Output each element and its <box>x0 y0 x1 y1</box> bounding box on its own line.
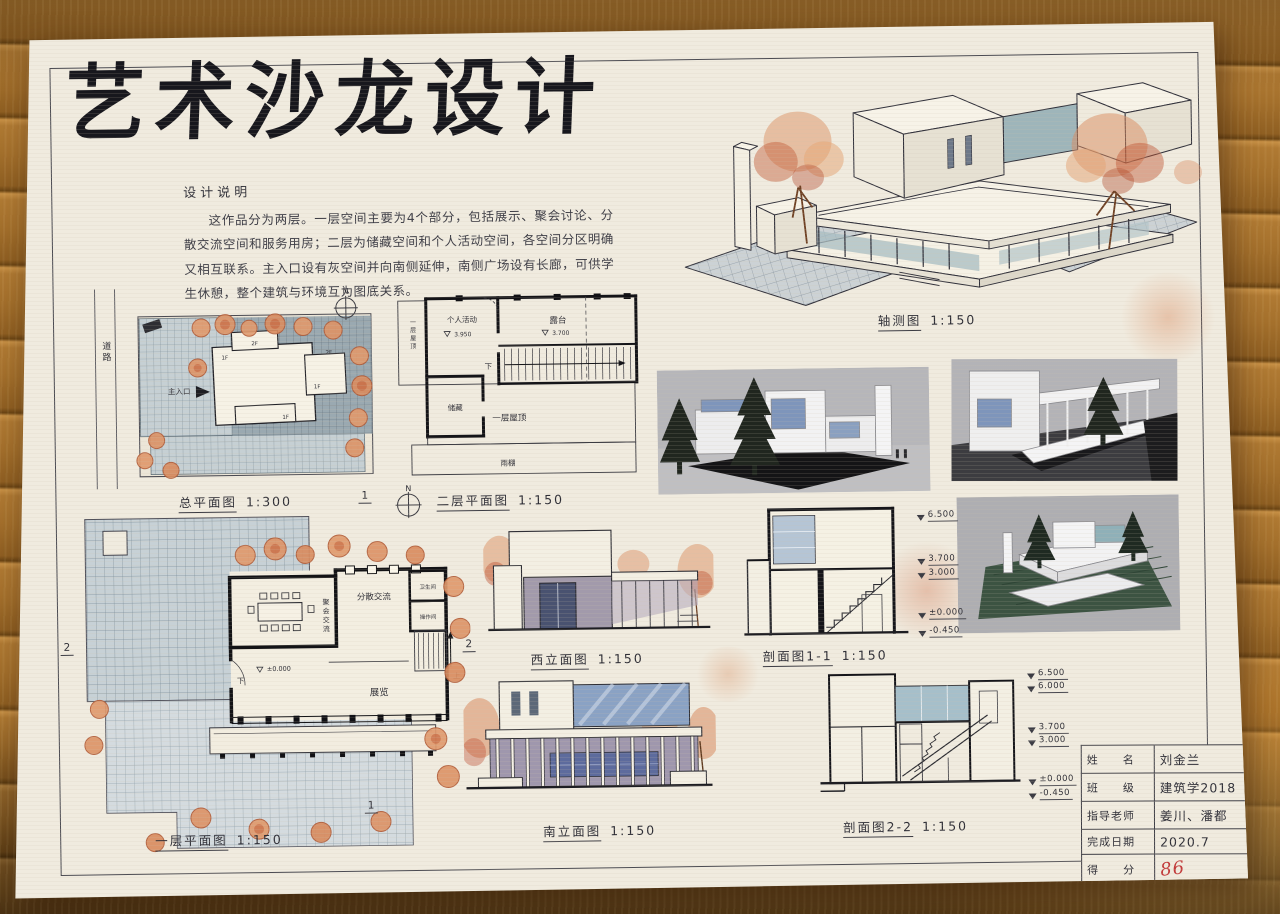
design-notes-heading: 设计说明 <box>183 176 613 201</box>
board-content: 艺术沙龙设计 设计说明 这作品分为两层。一层空间主要为4个部分，包括展示、聚会讨… <box>0 0 1280 914</box>
title-block-table: 姓 名 刘金兰 班 级 建筑学2018 指导老师 姜川、潘都 完成日期 2020… <box>1081 744 1251 885</box>
dispersed-room-label: 分散交流 <box>357 591 392 602</box>
first-floor-plan-figure: 聚会交流 分散交流 卫生间 操作间 展览 上 下 ±0.000 <box>77 508 474 857</box>
table-row: 完成日期 2020.7 <box>1082 829 1251 855</box>
design-notes-body: 这作品分为两层。一层空间主要为4个部分，包括展示、聚会讨论、分散交流空间和服务用… <box>183 203 614 306</box>
west-elevation-figure <box>483 519 715 644</box>
score-label: 得 分 <box>1082 854 1155 884</box>
entrance-label: 主入口 <box>168 386 191 396</box>
personal-activity-label: 个人活动 <box>447 314 478 324</box>
border-frame <box>49 52 1209 876</box>
storage-label: 储藏 <box>448 402 464 412</box>
axon-trees <box>753 106 1203 254</box>
name-label: 姓 名 <box>1081 745 1154 773</box>
pine-trees <box>659 377 780 477</box>
table-row: 得 分 86 <box>1082 854 1251 885</box>
level-zero: ±0.000 <box>267 665 291 673</box>
floor-tag: 1F <box>282 415 289 421</box>
advisor-label: 指导老师 <box>1081 801 1154 829</box>
advisor-value: 姜川、潘都 <box>1154 801 1250 829</box>
plan-trees <box>82 533 473 852</box>
second-floor-caption-row: N 二层平面图 1:150 <box>394 480 644 519</box>
date-label: 完成日期 <box>1082 829 1155 854</box>
score-value: 86 <box>1159 857 1186 881</box>
floor-tag: 2F <box>251 341 258 347</box>
stair-treads <box>504 347 630 381</box>
section-1-1-caption: 剖面图1-1 1:150 <box>763 644 888 667</box>
axonometric-drawing <box>646 52 1203 310</box>
road-label: 道路 <box>100 340 111 363</box>
south-elevation-figure <box>463 669 717 815</box>
roof-side-label: 一层屋顶 <box>408 319 415 351</box>
elevation-trees <box>463 683 717 789</box>
terrace-level: 3.700 <box>552 330 569 337</box>
entrance-arrow-icon <box>196 386 210 398</box>
section-2-2-levels: 6.500 6.000 3.700 3.000 ±0.000 -0.450 <box>1027 666 1095 813</box>
elevation-trees <box>483 533 715 630</box>
section-2-2-figure <box>817 665 1025 810</box>
svg-text:N: N <box>405 484 411 493</box>
site-plan-figure: 道路 2F 1F 2F 1F 1F <box>83 285 386 514</box>
class-label: 班 级 <box>1081 773 1154 801</box>
up-label: 上 <box>453 671 461 680</box>
svg-text:N: N <box>343 287 349 296</box>
axonometric-figure: 轴测图 1:150 <box>646 52 1204 335</box>
floor-tag: 1F <box>221 356 228 362</box>
watercolor-stain <box>693 646 764 702</box>
date-value: 2020.7 <box>1155 829 1251 854</box>
first-floor-plan-caption: 一层平面图 1:150 <box>155 829 283 852</box>
watercolor-stain <box>1117 272 1218 363</box>
second-floor-plan-figure: 一层屋顶 一层屋顶 雨棚 <box>385 282 646 486</box>
west-elevation-caption: 西立面图 1:150 <box>531 648 644 671</box>
north-compass-icon: N <box>394 483 422 519</box>
second-floor-plan-drawing: 一层屋顶 一层屋顶 雨棚 <box>385 282 646 486</box>
roof-label: 一层屋顶 <box>492 413 527 423</box>
table-row: 姓 名 刘金兰 <box>1081 745 1250 774</box>
poster-sheet-wrap: 艺术沙龙设计 设计说明 这作品分为两层。一层空间主要为4个部分，包括展示、聚会讨… <box>0 0 1280 914</box>
section-1-1-levels: 6.500 3.700 3.000 ±0.000 -0.450 <box>917 507 983 644</box>
down-label: 下 <box>485 362 493 371</box>
design-notes: 设计说明 这作品分为两层。一层空间主要为4个部分，包括展示、聚会讨论、分散交流空… <box>183 176 615 306</box>
poster-sheet: 艺术沙龙设计 设计说明 这作品分为两层。一层空间主要为4个部分，包括展示、聚会讨… <box>0 0 1280 914</box>
site-plan-drawing: 道路 2F 1F 2F 1F 1F <box>83 285 386 489</box>
name-value: 刘金兰 <box>1154 745 1250 773</box>
floor-tag: 1F <box>314 384 321 390</box>
floor-tag: 2F <box>325 350 332 356</box>
table-row: 指导老师 姜川、潘都 <box>1081 801 1250 830</box>
toilet-label: 卫生间 <box>419 583 436 591</box>
site-building: 2F 1F 2F 1F 1F <box>211 327 347 425</box>
south-elevation-caption: 南立面图 1:150 <box>543 820 656 843</box>
section-1-1-drawing <box>741 498 913 650</box>
class-value: 建筑学2018 <box>1154 773 1250 801</box>
rendering-3 <box>957 494 1181 633</box>
personal-activity-level: 3.950 <box>454 331 471 338</box>
operation-room-label: 操作间 <box>420 613 437 621</box>
section-1-1-figure <box>741 498 913 650</box>
canopy-label: 雨棚 <box>500 458 515 468</box>
rendering-2 <box>951 359 1177 481</box>
terrace-label: 露台 <box>549 315 566 326</box>
photo-of-presentation-board: 艺术沙龙设计 设计说明 这作品分为两层。一层空间主要为4个部分，包括展示、聚会讨… <box>0 0 1280 914</box>
table-row: 班 级 建筑学2018 <box>1081 773 1250 802</box>
poster-title: 艺术沙龙设计 <box>63 50 626 149</box>
section-mark-1-bottom: 1 <box>365 800 378 814</box>
site-plan-caption: 总平面图 1:300 <box>85 489 385 514</box>
watercolor-stain <box>881 535 973 646</box>
first-floor-plan-drawing: 聚会交流 分散交流 卫生间 操作间 展览 上 下 ±0.000 <box>77 508 474 857</box>
north-compass-icon: N <box>334 287 358 320</box>
west-elevation-drawing <box>483 519 715 644</box>
second-floor-plan-caption: 二层平面图 1:150 <box>436 488 564 511</box>
down-label: 下 <box>237 676 245 685</box>
section-2-2-caption: 剖面图2-2 1:150 <box>843 815 968 838</box>
section-mark-1-top: 1 <box>358 490 371 504</box>
axonometric-caption: 轴测图 1:150 <box>650 306 1204 335</box>
section-mark-2-left: 2 <box>60 642 73 656</box>
section-2-2-drawing <box>817 665 1025 810</box>
rendering-1 <box>657 367 931 495</box>
south-elevation-drawing <box>463 669 717 815</box>
section-mark-2-right: 2 <box>462 638 475 652</box>
site-trees <box>135 313 373 479</box>
meeting-room-label: 聚会交流 <box>322 598 331 634</box>
exhibition-label: 展览 <box>370 686 389 698</box>
